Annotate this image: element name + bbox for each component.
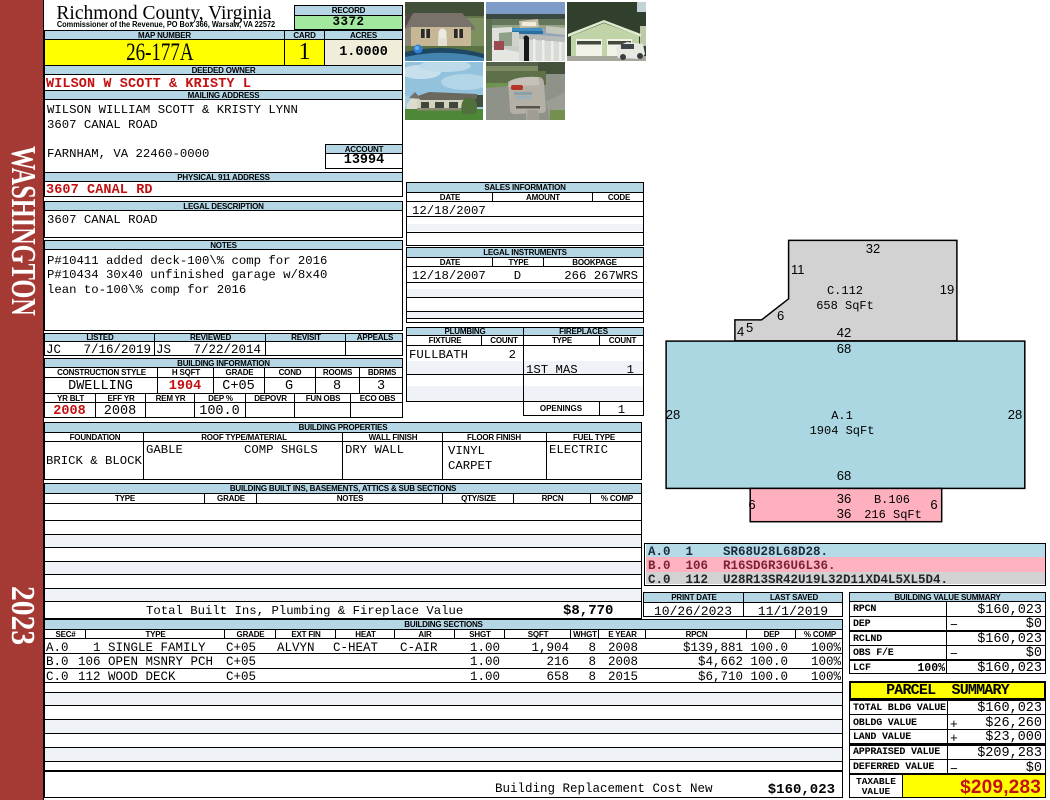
svg-text:6: 6 [777,308,784,323]
svg-text:6: 6 [748,497,755,512]
svg-text:6: 6 [930,497,937,512]
svg-text:28: 28 [1008,407,1022,422]
svg-text:42: 42 [837,325,851,340]
svg-text:68: 68 [837,468,851,483]
svg-text:1904 SqFt: 1904 SqFt [810,424,875,438]
svg-text:68: 68 [837,341,851,356]
svg-text:5: 5 [746,320,753,335]
svg-text:19: 19 [940,282,954,297]
svg-text:A.1: A.1 [831,409,853,423]
svg-text:B.106: B.106 [874,493,910,507]
svg-text:28: 28 [666,407,680,422]
svg-text:11: 11 [791,262,805,277]
svg-text:216 SqFt: 216 SqFt [864,508,922,522]
svg-text:4: 4 [737,324,744,339]
svg-text:32: 32 [866,241,880,256]
svg-text:C.112: C.112 [827,284,863,298]
svg-text:36: 36 [837,506,851,521]
svg-text:36: 36 [837,491,851,506]
svg-text:658 SqFt: 658 SqFt [816,299,874,313]
